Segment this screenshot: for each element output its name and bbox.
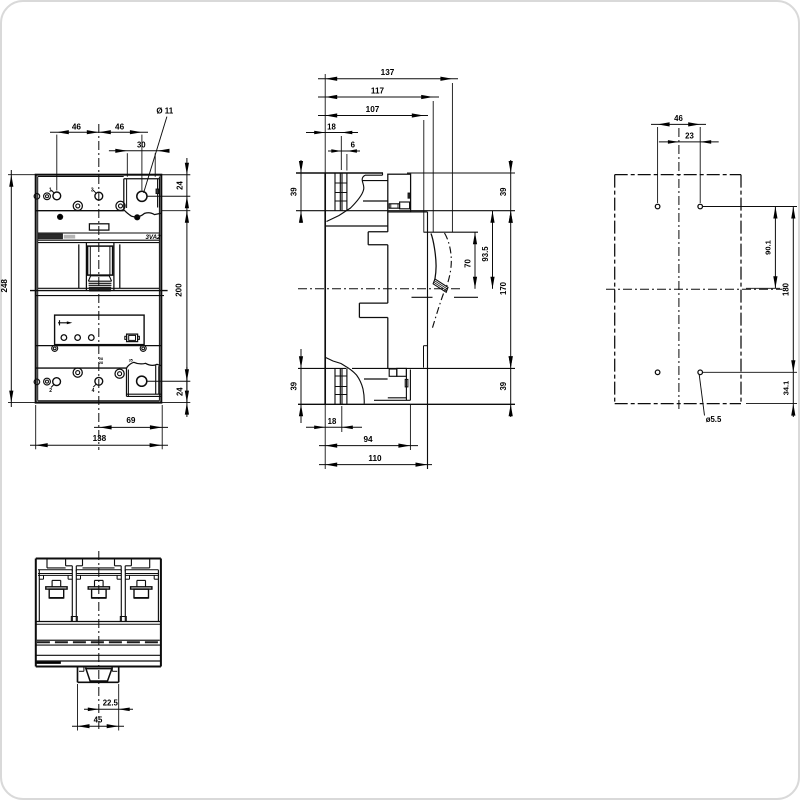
svg-text:18: 18 — [327, 122, 336, 131]
svg-text:137: 137 — [381, 68, 395, 77]
svg-text:2: 2 — [49, 388, 52, 394]
svg-text:30: 30 — [137, 141, 146, 150]
svg-text:70: 70 — [463, 259, 472, 268]
svg-text:46: 46 — [674, 114, 683, 123]
svg-text:Ø 11: Ø 11 — [156, 106, 173, 115]
svg-text:180: 180 — [782, 282, 791, 296]
svg-text:23: 23 — [685, 132, 694, 141]
svg-text:39: 39 — [289, 381, 298, 390]
svg-text:90.1: 90.1 — [764, 239, 773, 255]
svg-text:18: 18 — [328, 417, 337, 426]
svg-text:46: 46 — [115, 123, 125, 132]
svg-text:69: 69 — [126, 416, 136, 425]
svg-text:170: 170 — [499, 281, 508, 295]
svg-text:24: 24 — [175, 181, 184, 190]
svg-text:46: 46 — [72, 123, 82, 132]
svg-text:93.5: 93.5 — [481, 246, 490, 262]
svg-text:28: 28 — [99, 361, 103, 365]
svg-text:248: 248 — [0, 279, 9, 293]
svg-text:24: 24 — [175, 387, 184, 396]
svg-text:1: 1 — [49, 187, 52, 193]
svg-text:39: 39 — [499, 381, 508, 390]
svg-text:4: 4 — [92, 388, 95, 394]
svg-text:39: 39 — [289, 187, 298, 196]
svg-text:39: 39 — [499, 187, 508, 196]
svg-text:35: 35 — [129, 359, 133, 363]
svg-text:117: 117 — [371, 86, 385, 95]
svg-text:138: 138 — [93, 434, 107, 443]
svg-text:ø5.5: ø5.5 — [706, 415, 722, 424]
svg-text:94: 94 — [363, 435, 373, 444]
svg-text:200: 200 — [175, 283, 184, 297]
svg-text:3VA2: 3VA2 — [145, 234, 161, 241]
svg-text:34.1: 34.1 — [782, 381, 791, 395]
svg-text:45: 45 — [94, 715, 103, 724]
svg-text:110: 110 — [368, 454, 382, 463]
svg-text:3: 3 — [91, 188, 94, 194]
svg-text:6: 6 — [351, 141, 356, 150]
svg-text:107: 107 — [366, 105, 380, 114]
svg-text:22.5: 22.5 — [103, 699, 119, 708]
